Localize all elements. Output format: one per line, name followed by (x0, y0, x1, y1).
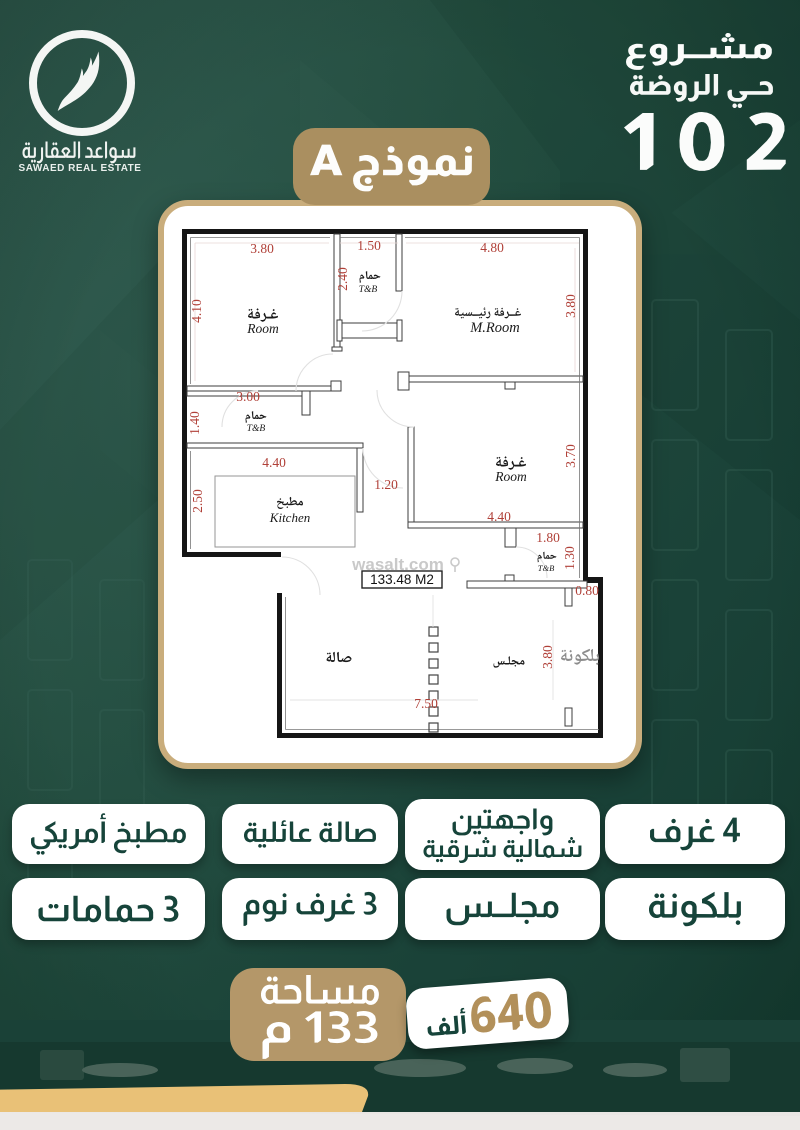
svg-text:3.80: 3.80 (540, 645, 555, 669)
svg-text:3.00: 3.00 (236, 389, 260, 404)
svg-text:T&B: T&B (538, 563, 555, 573)
svg-text:7.50: 7.50 (414, 696, 438, 711)
svg-text:4.80: 4.80 (480, 240, 504, 255)
svg-text:Room: Room (494, 469, 527, 484)
svg-text:2.40: 2.40 (335, 267, 350, 291)
svg-text:3.80: 3.80 (563, 294, 578, 318)
svg-text:3.70: 3.70 (563, 444, 578, 468)
svg-text:1.50: 1.50 (357, 238, 381, 253)
svg-text:1.20: 1.20 (374, 477, 398, 492)
svg-text:Room: Room (246, 321, 279, 336)
svg-text:Kitchen: Kitchen (269, 510, 310, 525)
svg-text:2.50: 2.50 (190, 489, 205, 513)
svg-text:4.10: 4.10 (189, 299, 204, 323)
svg-text:1.40: 1.40 (187, 411, 202, 435)
svg-text:4.40: 4.40 (487, 509, 511, 524)
svg-text:3.80: 3.80 (250, 241, 274, 256)
svg-text:M.Room: M.Room (469, 320, 520, 336)
svg-text:1.80: 1.80 (536, 530, 560, 545)
svg-text:4.40: 4.40 (262, 455, 286, 470)
svg-text:133.48 M2: 133.48 M2 (370, 572, 434, 587)
svg-text:T&B: T&B (247, 424, 266, 434)
svg-text:T&B: T&B (359, 285, 378, 295)
svg-text:1.30: 1.30 (562, 546, 577, 570)
svg-text:0.80: 0.80 (575, 583, 599, 598)
